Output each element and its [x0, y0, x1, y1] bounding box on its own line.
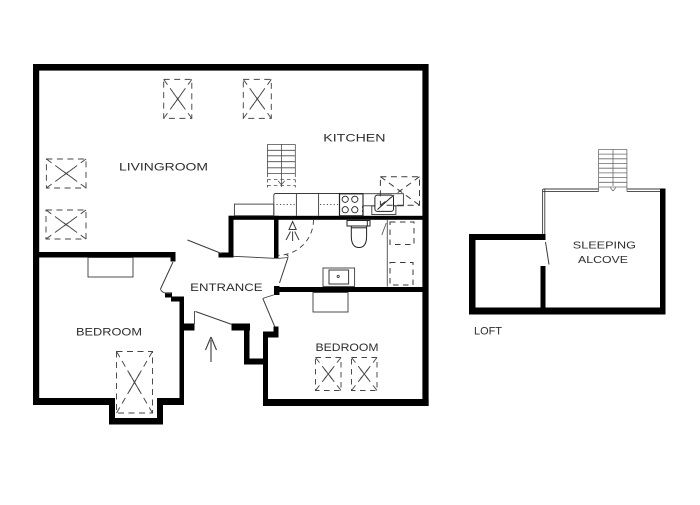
svg-text:SLEEPING: SLEEPING: [573, 240, 636, 252]
svg-text:BEDROOM: BEDROOM: [76, 327, 142, 339]
svg-text:ALCOVE: ALCOVE: [578, 254, 628, 266]
svg-text:KITCHEN: KITCHEN: [323, 133, 385, 145]
svg-text:BEDROOM: BEDROOM: [316, 342, 379, 354]
svg-text:ENTRANCE: ENTRANCE: [190, 282, 262, 294]
svg-text:LIVINGROOM: LIVINGROOM: [119, 162, 208, 174]
svg-text:LOFT: LOFT: [474, 326, 502, 338]
